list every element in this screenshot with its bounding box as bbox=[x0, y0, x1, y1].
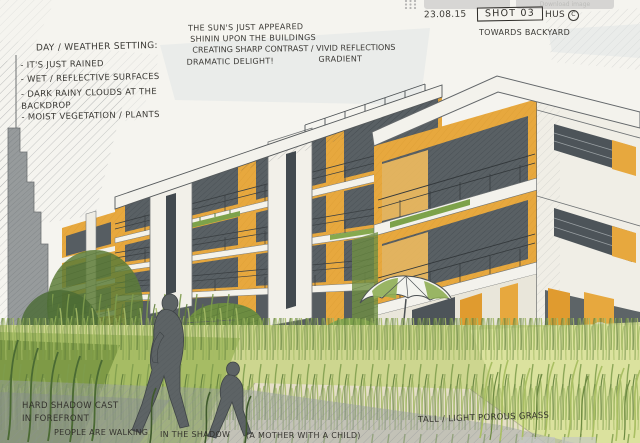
bottom-ui-fragment[interactable] bbox=[562, 437, 596, 443]
weather-note-item: - IT'S JUST RAINED bbox=[20, 59, 104, 71]
author-signature: HUSC bbox=[545, 10, 579, 21]
shot-date: 23.08.15 bbox=[424, 10, 467, 21]
shadow-note-line: HARD SHADOW CAST bbox=[22, 401, 118, 411]
shot-label-box: SHOT 03 bbox=[477, 6, 543, 21]
copyright-icon: C bbox=[568, 10, 579, 21]
sunlight-note-line: SHININ UPON THE BUILDINGS bbox=[190, 33, 316, 44]
sunlight-note-line: DRAMATIC DELIGHT! bbox=[186, 57, 274, 67]
shadow-note-line: (A MOTHER WITH A CHILD) bbox=[246, 431, 361, 440]
sunlight-note-line: THE SUN'S JUST APPEARED bbox=[188, 22, 303, 33]
shadow-note-line: IN THE SHADOW bbox=[160, 430, 230, 439]
shot-direction: TOWARDS BACKYARD bbox=[479, 28, 570, 37]
author-name: HUS bbox=[545, 10, 565, 20]
grid-dots-icon[interactable] bbox=[404, 0, 417, 9]
bottom-ui-fragment[interactable] bbox=[519, 437, 555, 443]
weather-note-item: - DARK RAINY CLOUDS AT THE BACKDROP bbox=[21, 86, 171, 113]
sunlight-note-line: GRADIENT bbox=[318, 54, 362, 64]
sketch-page: Download image DAY / WEATHER SETTING: - … bbox=[0, 0, 640, 443]
shadow-note-line: PEOPLE ARE WALKING bbox=[54, 428, 148, 437]
shadow-note-line: IN FOREFRONT bbox=[22, 414, 89, 424]
